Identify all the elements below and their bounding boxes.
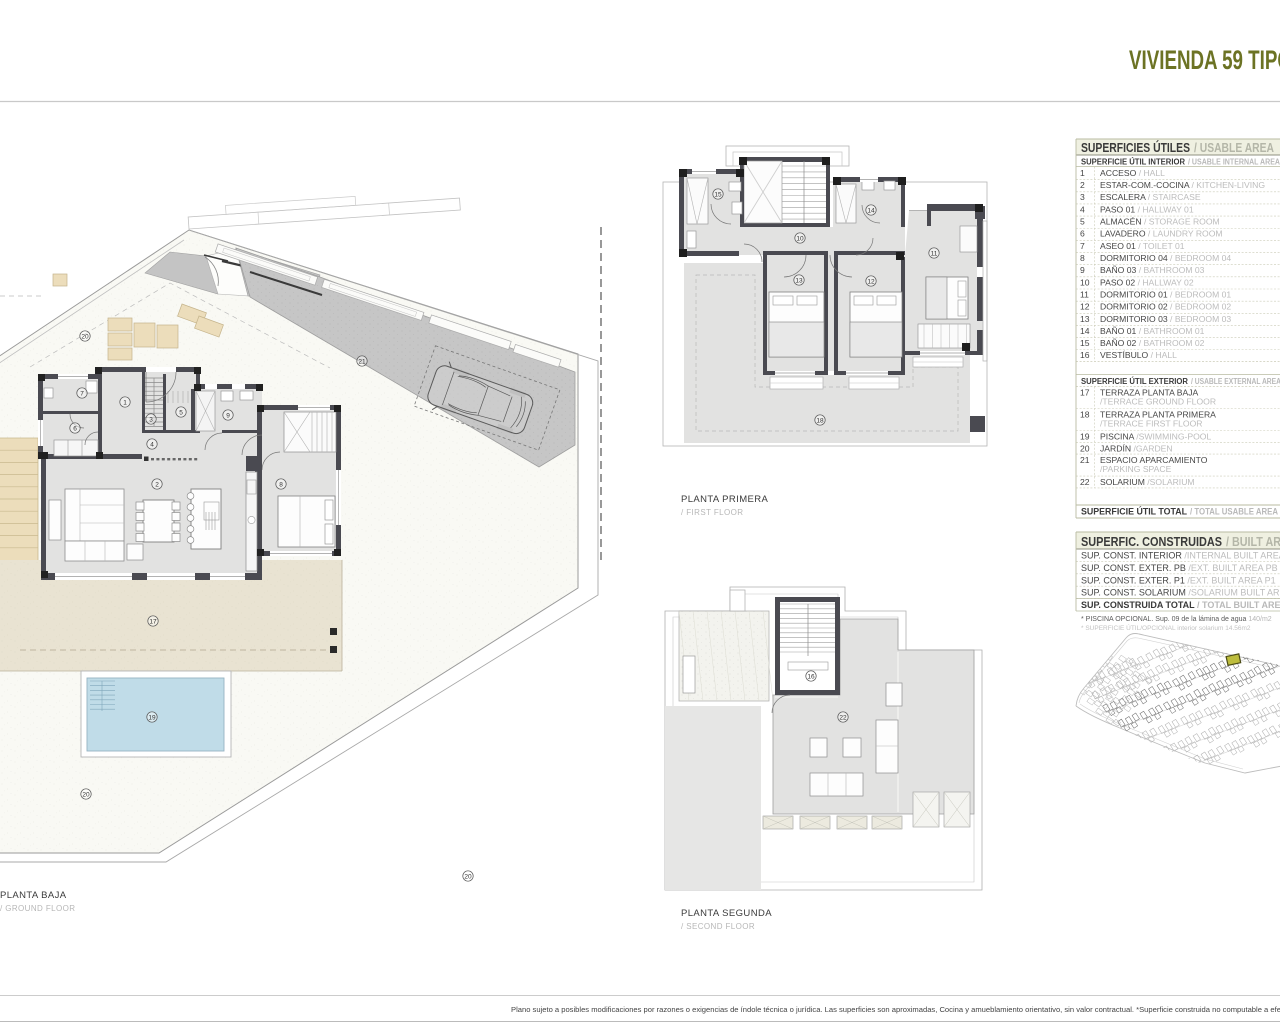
svg-text:20: 20 [1080,443,1090,453]
svg-text:20: 20 [81,333,89,340]
svg-text:22: 22 [839,714,847,721]
svg-text:5: 5 [179,409,183,416]
svg-text:2: 2 [1080,180,1085,190]
svg-text:2: 2 [155,481,159,488]
svg-text:SUPERFICIE ÚTIL EXTERIOR: SUPERFICIE ÚTIL EXTERIOR [1081,375,1189,386]
svg-text:13: 13 [795,277,803,284]
svg-text:1: 1 [123,399,127,406]
svg-text:SUP. CONST. INTERIOR /INTERNAL: SUP. CONST. INTERIOR /INTERNAL BUILT ARE… [1081,551,1280,561]
svg-text:SUP. CONST. SOLARIUM /SOLARIUM: SUP. CONST. SOLARIUM /SOLARIUM BUILT ARE… [1081,588,1280,598]
svg-text:LAVADERO / LAUNDRY ROOM: LAVADERO / LAUNDRY ROOM [1100,229,1223,239]
svg-text:SUPERFIC. CONSTRUIDAS: SUPERFIC. CONSTRUIDAS [1081,534,1222,549]
svg-text:21: 21 [1080,455,1090,465]
svg-text:18: 18 [816,417,824,424]
svg-text:ASEO 01 / TOILET 01: ASEO 01 / TOILET 01 [1100,241,1185,251]
svg-text:SUPERFICIE ÚTIL TOTAL: SUPERFICIE ÚTIL TOTAL [1081,506,1187,518]
svg-text:PLANTA SEGUNDA: PLANTA SEGUNDA [681,908,772,919]
svg-text:PASO 02 / HALLWAY 02: PASO 02 / HALLWAY 02 [1100,277,1194,287]
svg-text:PISCINA /SWIMMING-POOL: PISCINA /SWIMMING-POOL [1100,432,1211,442]
svg-text:9: 9 [1080,265,1085,275]
svg-text:11: 11 [931,250,938,257]
svg-text:15: 15 [714,191,722,198]
svg-text:BAÑO 02 / BATHROOM 02: BAÑO 02 / BATHROOM 02 [1100,338,1205,348]
svg-text:DORMITORIO 02 / BEDROOM 02: DORMITORIO 02 / BEDROOM 02 [1100,302,1231,312]
svg-text:15: 15 [1080,338,1090,348]
svg-text:1: 1 [1080,168,1085,178]
svg-text:10: 10 [1080,277,1090,287]
svg-text:/ USABLE EXTERNAL AREA: / USABLE EXTERNAL AREA [1191,376,1280,386]
svg-text:BAÑO 01 / BATHROOM 01: BAÑO 01 / BATHROOM 01 [1100,326,1205,336]
svg-text:/ SECOND FLOOR: / SECOND FLOOR [681,922,755,931]
svg-text:SUPERFICIES ÚTILES: SUPERFICIES ÚTILES [1081,140,1190,155]
svg-text:SUP. CONST. EXTER. PB /EXT. BU: SUP. CONST. EXTER. PB /EXT. BUILT AREA P… [1081,563,1278,573]
svg-text:16: 16 [807,673,815,680]
svg-text:ALMACÉN / STORAGE ROOM: ALMACÉN / STORAGE ROOM [1100,217,1220,227]
svg-text:/PARKING SPACE: /PARKING SPACE [1100,464,1172,474]
svg-text:DORMITORIO 04 / BEDROOM 04: DORMITORIO 04 / BEDROOM 04 [1100,253,1231,263]
svg-text:7: 7 [1080,241,1085,251]
svg-text:20: 20 [82,791,90,798]
svg-text:6: 6 [73,425,77,432]
svg-text:18: 18 [1080,410,1090,420]
svg-text:/TERRACE FIRST FLOOR: /TERRACE FIRST FLOOR [1100,418,1203,428]
svg-text:21: 21 [358,358,366,365]
svg-text:SUP. CONST. EXTER. P1 /EXT. BU: SUP. CONST. EXTER. P1 /EXT. BUILT AREA P… [1081,575,1276,585]
svg-text:PLANTA BAJA: PLANTA BAJA [0,890,67,901]
svg-text:12: 12 [1080,302,1090,312]
svg-text:11: 11 [1080,289,1089,299]
svg-text:ACCESO / HALL: ACCESO / HALL [1100,168,1165,178]
svg-text:19: 19 [148,714,156,721]
svg-text:/ GROUND FLOOR: / GROUND FLOOR [0,904,75,913]
svg-text:6: 6 [1080,229,1085,239]
svg-text:DORMITORIO 03 / BEDROOM 03: DORMITORIO 03 / BEDROOM 03 [1100,314,1231,324]
svg-text:7: 7 [80,390,84,397]
svg-text:ESCALERA / STAIRCASE: ESCALERA / STAIRCASE [1100,192,1201,202]
svg-text:/ TOTAL USABLE AREA: / TOTAL USABLE AREA [1190,507,1278,518]
svg-text:VESTÍBULO / HALL: VESTÍBULO / HALL [1100,350,1177,360]
svg-text:SUPERFICIE ÚTIL INTERIOR: SUPERFICIE ÚTIL INTERIOR [1081,156,1186,167]
svg-text:DORMITORIO 01 / BEDROOM 01: DORMITORIO 01 / BEDROOM 01 [1100,289,1231,299]
svg-text:8: 8 [279,481,283,488]
svg-text:/ FIRST FLOOR: / FIRST FLOOR [681,508,743,517]
svg-text:17: 17 [1080,388,1090,398]
svg-text:4: 4 [1080,204,1085,214]
svg-text:* SUPERFICIE ÚTIL/OPCIONAL int: * SUPERFICIE ÚTIL/OPCIONAL interior sola… [1081,623,1251,632]
svg-text:/ BUILT AREA: / BUILT AREA [1226,534,1280,549]
svg-text:19: 19 [1080,432,1090,442]
svg-text:3: 3 [1080,192,1085,202]
svg-text:22: 22 [1080,477,1090,487]
svg-text:/ USABLE INTERNAL AREA: / USABLE INTERNAL AREA [1188,157,1280,167]
svg-text:4: 4 [150,441,154,448]
svg-text:/TERRACE GROUND FLOOR: /TERRACE GROUND FLOOR [1100,396,1216,406]
svg-text:3: 3 [149,416,153,423]
svg-text:9: 9 [226,412,230,419]
svg-text:20: 20 [464,873,472,880]
svg-text:SOLARIUM /SOLARIUM: SOLARIUM /SOLARIUM [1100,477,1195,487]
svg-text:SUP. CONSTRUIDA TOTAL / TOTAL: SUP. CONSTRUIDA TOTAL / TOTAL BUILT AREA [1081,600,1280,610]
svg-text:10: 10 [796,235,804,242]
svg-text:8: 8 [1080,253,1085,263]
svg-text:* PISCINA OPCIONAL. Sup. 09 de: * PISCINA OPCIONAL. Sup. 09 de la lámina… [1081,616,1272,623]
svg-text:BAÑO 03 / BATHROOM 03: BAÑO 03 / BATHROOM 03 [1100,265,1205,275]
svg-text:/ USABLE AREA: / USABLE AREA [1194,140,1274,155]
svg-text:17: 17 [149,618,157,625]
svg-text:PLANTA PRIMERA: PLANTA PRIMERA [681,494,769,505]
svg-text:16: 16 [1080,350,1090,360]
svg-text:5: 5 [1080,217,1085,227]
svg-text:PASO 01 / HALLWAY 01: PASO 01 / HALLWAY 01 [1100,204,1194,214]
svg-text:Plano sujeto a posibles modifi: Plano sujeto a posibles modificaciones p… [511,1005,1280,1014]
svg-text:ESTAR-COM.-COCINA / KITCHEN-LI: ESTAR-COM.-COCINA / KITCHEN-LIVING [1100,180,1265,190]
svg-text:13: 13 [1080,314,1090,324]
svg-text:VIVIENDA 59 TIPO A: VIVIENDA 59 TIPO A [1129,45,1280,75]
svg-text:14: 14 [867,207,875,214]
svg-text:12: 12 [867,278,875,285]
svg-text:14: 14 [1080,326,1090,336]
svg-text:JARDÍN /GARDEN: JARDÍN /GARDEN [1100,443,1173,453]
